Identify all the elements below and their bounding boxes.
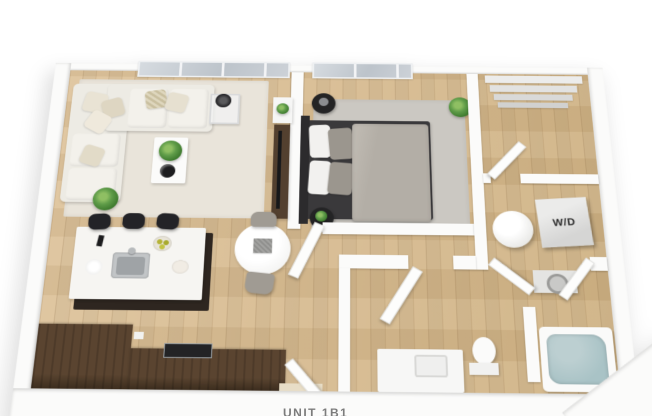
toilet-tank [469,363,499,375]
table-centerpiece [253,238,272,253]
vanity-sink [414,355,448,378]
closet-shelves [485,75,583,83]
unit-caption: UNIT 1B1 [283,406,348,416]
wall-bath-north [339,255,409,269]
kitchen-counter-left [31,324,133,390]
counter-item [134,332,144,339]
apartment-floorplan: W/D [8,63,642,416]
bar-stool [156,213,180,230]
living-room-window [137,61,290,78]
cooktop [163,343,212,358]
floorplan-scene: W/D [0,0,652,416]
bedroom-window [312,62,413,79]
bed-pillow-grey [327,162,355,196]
kitchen-sink-basin [116,257,146,275]
bed-pillow-grey [328,127,355,160]
bathtub-water [546,334,610,385]
wall-bedroom-south [322,222,474,235]
bar-stool [88,213,111,230]
nightstand-plant [315,211,327,222]
closet-shelves [498,102,569,108]
closet-shelves [494,94,573,101]
closet-shelves [490,85,578,92]
washer-dryer-label: W/D [552,216,577,229]
washer-dryer: W/D [535,197,594,248]
duvet [352,124,431,222]
dining-chair [244,271,275,295]
wall-bath-north [453,256,476,270]
wall-closet-south [520,174,599,184]
dining-chair [250,212,276,227]
wall-bath-west [338,268,350,391]
nightstand-lamp [319,98,329,106]
bar-stool [122,213,146,229]
